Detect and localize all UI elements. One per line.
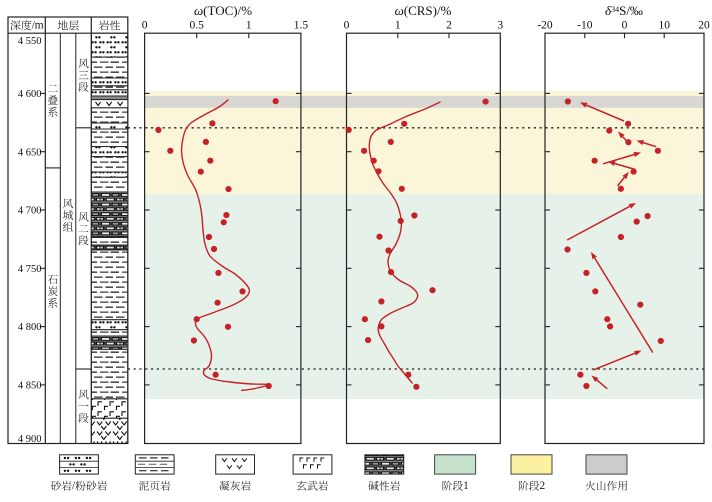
- svg-text:-10: -10: [577, 20, 593, 32]
- svg-text:4 600: 4 600: [18, 89, 42, 100]
- svg-text:1.5: 1.5: [294, 20, 309, 32]
- svg-text:-20: -20: [537, 20, 553, 32]
- svg-text:20: 20: [698, 20, 710, 32]
- svg-text:1: 1: [463, 480, 469, 492]
- svg-text:4 650: 4 650: [18, 147, 42, 158]
- svg-text:4 750: 4 750: [18, 264, 42, 275]
- svg-text:4 800: 4 800: [18, 322, 42, 333]
- svg-text:4 550: 4 550: [18, 36, 42, 47]
- svg-text:2: 2: [446, 20, 452, 32]
- svg-text:3: 3: [497, 20, 503, 32]
- svg-text:0: 0: [622, 20, 628, 32]
- svg-text:4 700: 4 700: [18, 206, 42, 217]
- svg-text:4 850: 4 850: [18, 381, 42, 392]
- svg-text:δ34S/‰: δ34S/‰: [605, 3, 643, 18]
- svg-text:ω(CRS)/%: ω(CRS)/%: [395, 3, 452, 18]
- svg-text:ω(TOC)/%: ω(TOC)/%: [194, 3, 252, 18]
- svg-text:0.5: 0.5: [190, 20, 205, 32]
- svg-text:m: m: [35, 19, 44, 32]
- svg-text:2: 2: [539, 480, 545, 492]
- svg-text:0: 0: [142, 20, 148, 32]
- svg-text:0: 0: [344, 20, 350, 32]
- svg-text:/: /: [72, 480, 76, 492]
- svg-text:1: 1: [395, 20, 401, 32]
- svg-text:1: 1: [246, 20, 252, 32]
- svg-text:4 900: 4 900: [18, 434, 42, 445]
- svg-text:10: 10: [658, 20, 670, 32]
